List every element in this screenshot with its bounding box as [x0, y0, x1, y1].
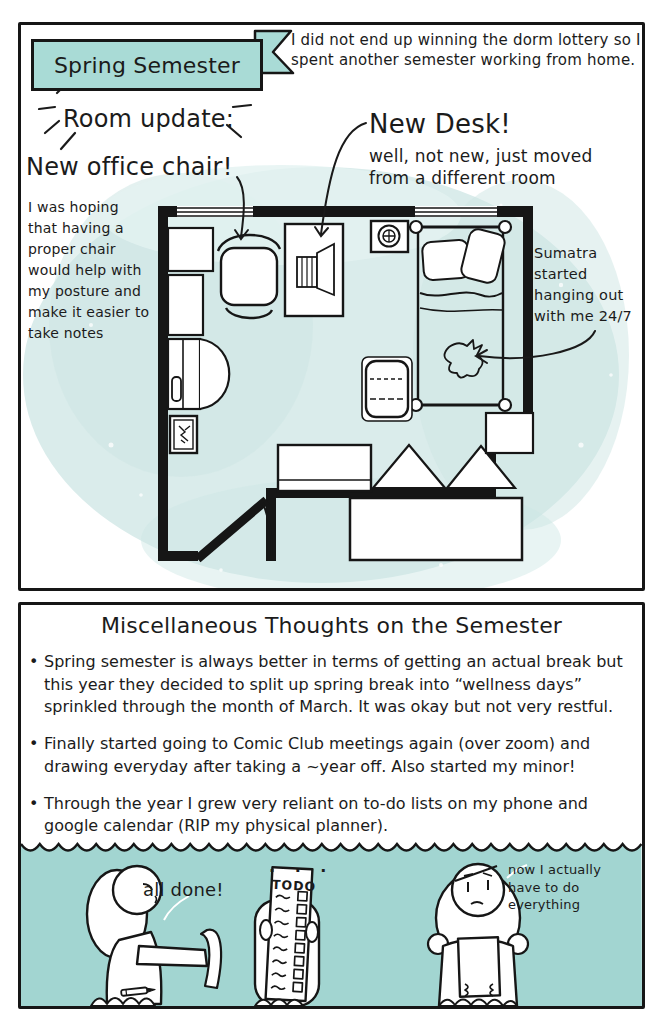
- sumatra-note: Sumatra started hanging out with me 24/7: [534, 243, 646, 327]
- list-item: • Spring semester is always better in te…: [29, 651, 637, 719]
- side-table: [278, 445, 371, 491]
- dresser-with-chair: [168, 339, 229, 409]
- corner-shelf: [486, 413, 533, 453]
- new-desk-label: New Desk!: [369, 109, 511, 139]
- bullet-text: Spring semester is always better in term…: [44, 651, 637, 719]
- cat-bed: [170, 416, 197, 453]
- section-title: Miscellaneous Thoughts on the Semester: [21, 613, 642, 638]
- bottom-panel: Miscellaneous Thoughts on the Semester •…: [18, 602, 645, 1009]
- list-item: • Finally started going to Comic Club me…: [29, 733, 637, 778]
- list-item: • Through the year I grew very reliant o…: [29, 793, 637, 838]
- banner-label: Spring Semester: [54, 53, 240, 78]
- bullet-marker: •: [29, 733, 44, 778]
- speech-text: all done!: [143, 879, 224, 900]
- chair-note: I was hoping that having a proper chair …: [28, 197, 152, 344]
- ellipsis-text: . . .: [269, 857, 333, 876]
- comic-page: { "colors": { "teal_banner": "#a9dbd6", …: [0, 0, 663, 1024]
- bullet-marker: •: [29, 651, 44, 719]
- top-panel: Spring Semester I did not end up winning…: [18, 22, 645, 591]
- phone-icon: [458, 937, 500, 996]
- fan-icon: [371, 221, 408, 252]
- speech-text: now I actually have to do everything: [508, 861, 604, 914]
- ottoman: [362, 357, 412, 421]
- desk: [285, 224, 343, 316]
- new-chair-label: New office chair!: [26, 153, 233, 181]
- new-desk-subtext: well, not new, just moved from a differe…: [369, 145, 611, 189]
- todo-list-title: TODO: [272, 877, 317, 894]
- bullet-text: Finally started going to Comic Club meet…: [44, 733, 637, 778]
- bullet-list: • Spring semester is always better in te…: [29, 651, 637, 838]
- intro-text: I did not end up winning the dorm lotter…: [291, 31, 645, 71]
- banner-ribbon: Spring Semester: [31, 39, 263, 91]
- bullet-marker: •: [29, 793, 44, 838]
- room-update-heading: Room update:: [63, 105, 234, 133]
- bullet-text: Through the year I grew very reliant on …: [44, 793, 637, 838]
